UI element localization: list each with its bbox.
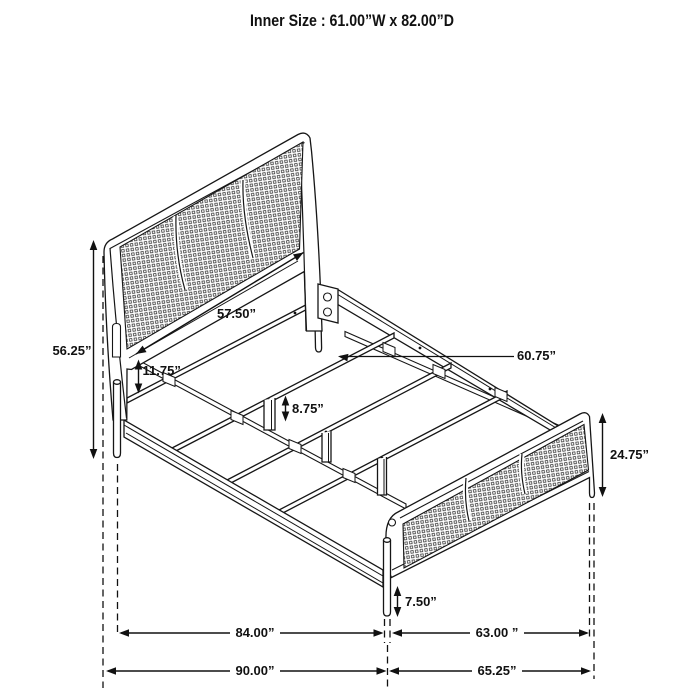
svg-text:90.00”: 90.00” — [235, 663, 274, 678]
svg-text:84.00”: 84.00” — [235, 625, 274, 640]
svg-text:11.75”: 11.75” — [143, 363, 181, 378]
svg-text:60.75”: 60.75” — [517, 348, 556, 363]
svg-text:56.25”: 56.25” — [52, 343, 91, 358]
svg-text:63.00 ”: 63.00 ” — [476, 625, 519, 640]
svg-text:57.50”: 57.50” — [217, 306, 256, 321]
svg-text:65.25”: 65.25” — [477, 663, 516, 678]
svg-text:24.75”: 24.75” — [610, 447, 649, 462]
svg-text:8.75”: 8.75” — [292, 401, 324, 416]
svg-text:Inner Size : 61.00”W x 82.00”D: Inner Size : 61.00”W x 82.00”D — [250, 12, 454, 30]
svg-text:7.50”: 7.50” — [405, 594, 437, 609]
